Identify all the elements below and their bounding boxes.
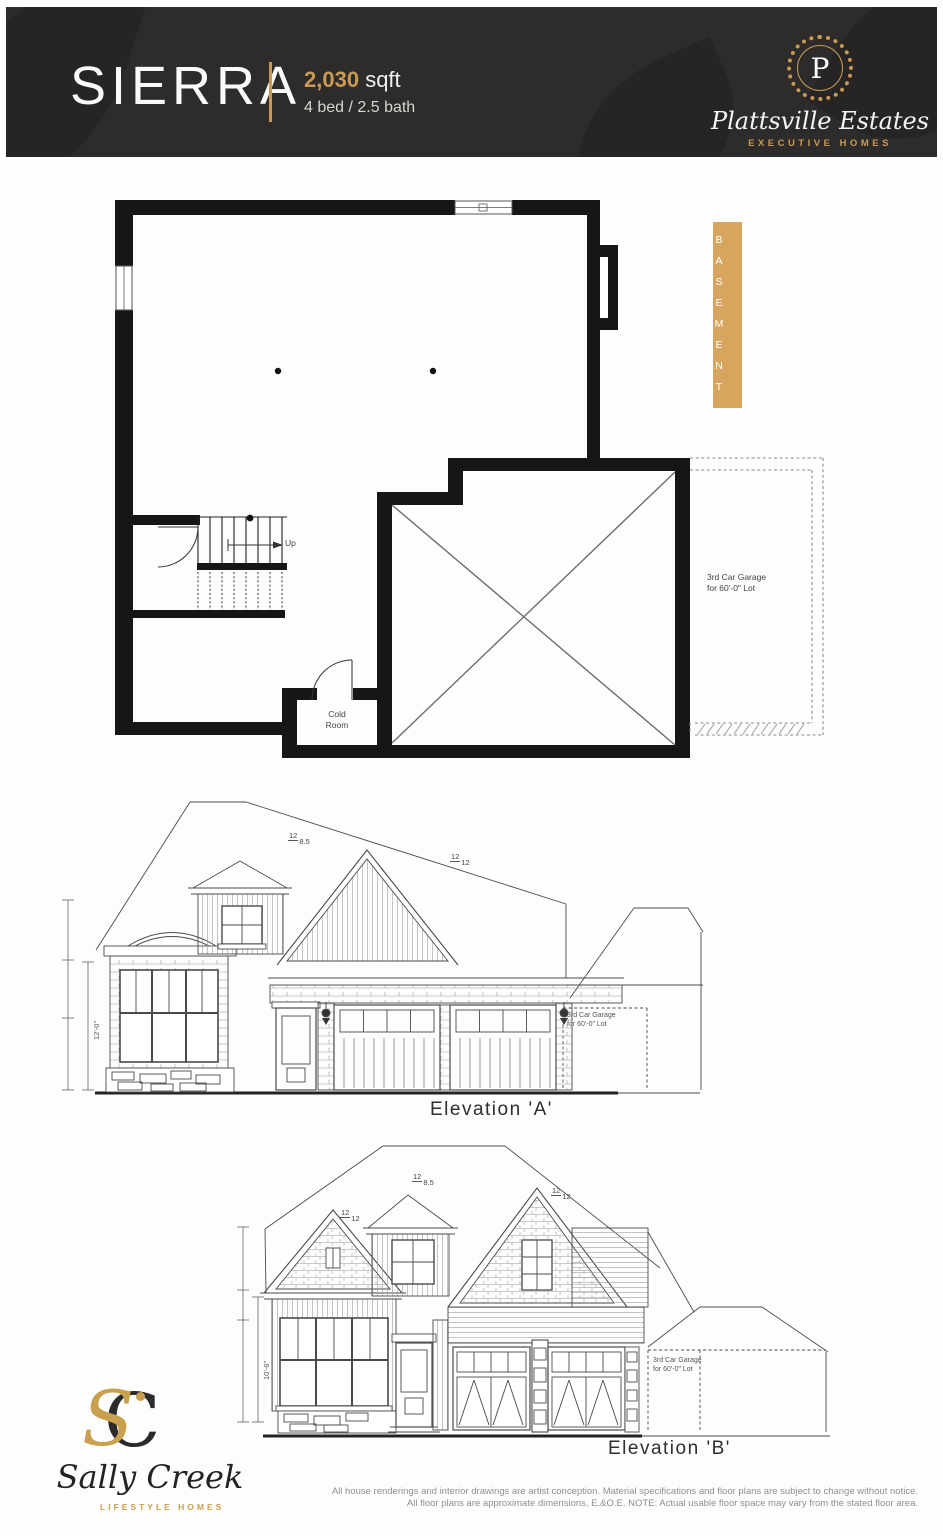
elev-a-garage-note: 3rd Car Garage for 60'-0" Lot bbox=[567, 1011, 616, 1029]
elev-b-dimension: 10'-6" bbox=[262, 1361, 271, 1380]
elev-b-garage-note: 3rd Car Garage for 60'-0" Lot bbox=[653, 1356, 702, 1374]
builder-monogram-s: S bbox=[82, 1374, 134, 1463]
pitch-label-a-main: 128.5 bbox=[288, 831, 310, 846]
up-label: Up bbox=[285, 538, 296, 549]
cold-room-label: Cold Room bbox=[320, 709, 354, 730]
stairs-lower-dotted bbox=[198, 572, 282, 610]
elev-a-dimension: 12'-0" bbox=[92, 1021, 101, 1040]
elevation-a-drawing bbox=[62, 802, 703, 1093]
elevation-a-caption: Elevation 'A' bbox=[430, 1099, 553, 1121]
third-car-garage-dashed bbox=[690, 458, 823, 735]
support-post bbox=[275, 368, 281, 374]
pitch-label-b-left: 1212 bbox=[340, 1208, 360, 1223]
disclaimer-text: All house renderings and interior drawin… bbox=[298, 1486, 918, 1511]
builder-tagline: LIFESTYLE HOMES bbox=[100, 1502, 224, 1512]
pitch-label-b-dormer: 128.5 bbox=[412, 1172, 434, 1187]
wall-notch-inset bbox=[600, 257, 608, 318]
up-arrow bbox=[228, 539, 283, 551]
line-art-canvas bbox=[0, 0, 943, 1536]
stairs-up bbox=[198, 517, 287, 563]
pitch-label-b-right: 1212 bbox=[551, 1186, 571, 1201]
pitch-label-a-gable: 1212 bbox=[450, 852, 470, 867]
brochure-page: SIERRA 2,030 sqft 4 bed / 2.5 bath P Pla… bbox=[0, 0, 943, 1536]
stair-post bbox=[247, 515, 254, 522]
builder-monogram-dot bbox=[136, 1392, 145, 1401]
builder-logo: C S Sally Creek LIFESTYLE HOMES bbox=[40, 1378, 260, 1518]
builder-name: Sally Creek bbox=[40, 1458, 260, 1496]
dimension-lines-a bbox=[62, 900, 94, 1090]
support-post bbox=[430, 368, 436, 374]
unexcavated-cross bbox=[392, 472, 675, 745]
garage-hatch bbox=[698, 724, 804, 734]
basement-tab-label: BASEMENT bbox=[713, 222, 742, 408]
elevation-b-caption: Elevation 'B' bbox=[608, 1438, 731, 1460]
plan-garage-note: 3rd Car Garage for 60'-0" Lot bbox=[707, 572, 766, 593]
elevation-b-drawing bbox=[237, 1146, 830, 1436]
window-symbols bbox=[116, 201, 512, 310]
